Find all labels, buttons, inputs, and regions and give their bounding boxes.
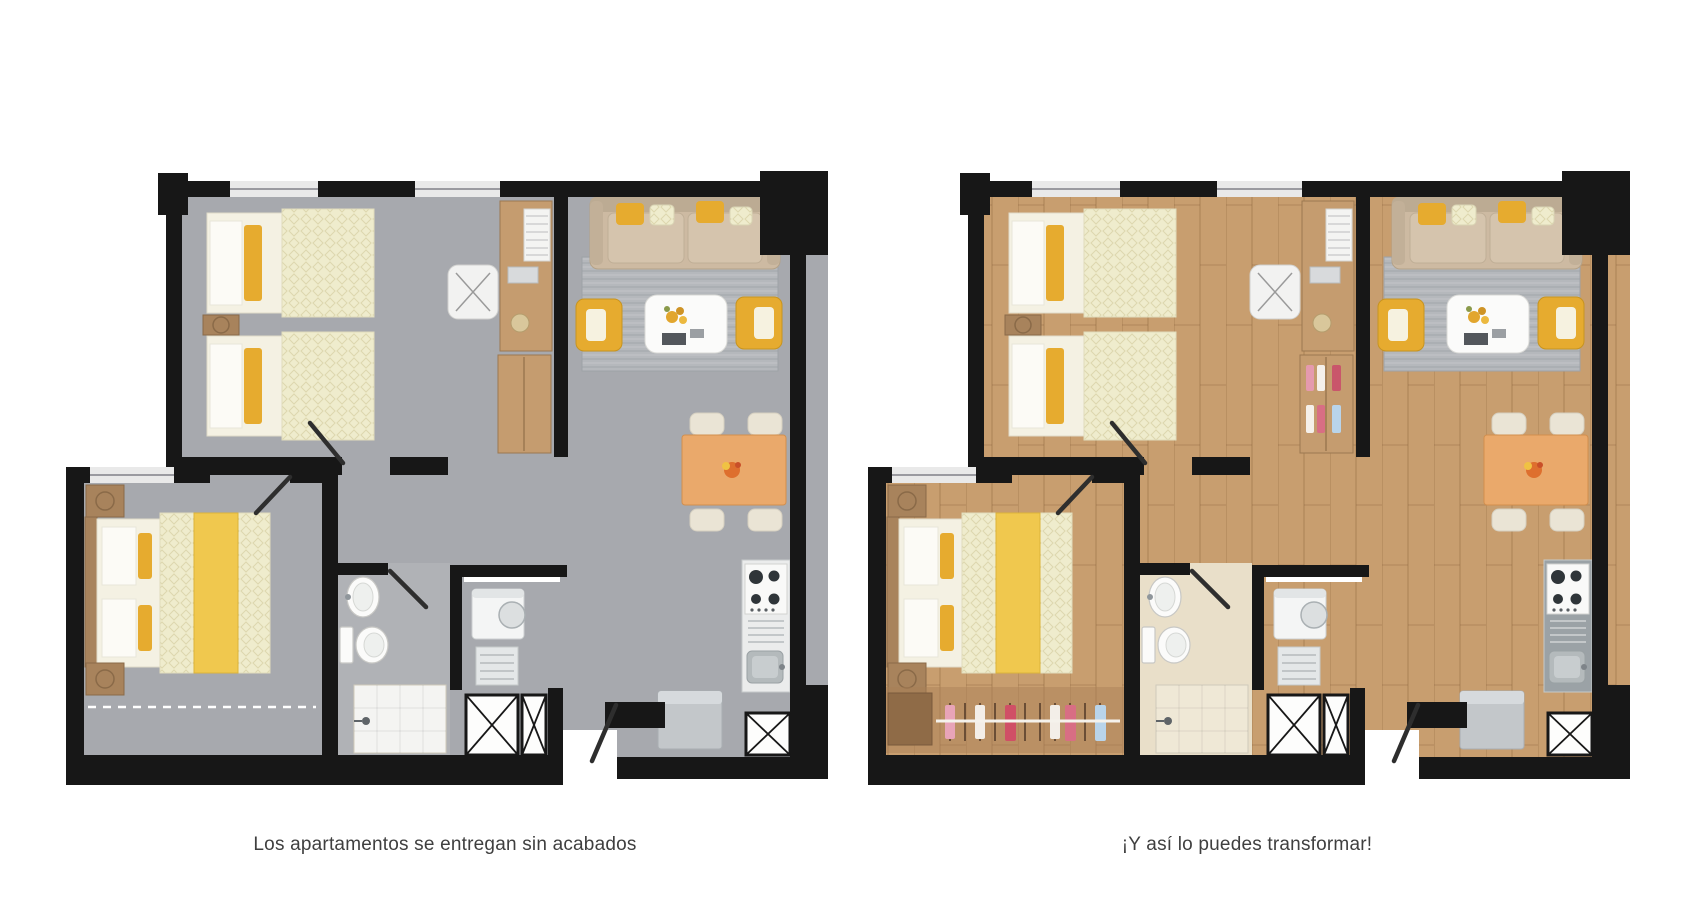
floor-plan-svg xyxy=(60,165,830,790)
office-chair xyxy=(448,265,498,319)
shower xyxy=(1156,685,1248,753)
cooktop xyxy=(745,564,787,614)
sofa-pillow-yellow-2 xyxy=(696,201,724,223)
hallway-wardrobe xyxy=(498,355,551,453)
duct-shaft xyxy=(746,713,790,755)
window-master xyxy=(892,467,976,483)
sofa-pillow-pattern-2 xyxy=(730,207,752,225)
desk-lamp xyxy=(511,314,529,332)
sofa-pillow-pattern xyxy=(650,205,674,225)
shower-drain xyxy=(1164,717,1172,725)
pillow-yellow xyxy=(1046,225,1064,301)
sofa-pillow-pattern xyxy=(1452,205,1476,225)
armchair-left xyxy=(1378,299,1424,351)
dining-chair xyxy=(748,413,782,435)
dining-chair xyxy=(690,509,724,531)
living-room xyxy=(576,197,782,371)
shower-drain xyxy=(362,717,370,725)
twin-bed-2 xyxy=(207,332,374,440)
duct-shaft xyxy=(1548,713,1592,755)
sofa xyxy=(590,197,780,269)
dining-chair xyxy=(690,413,724,435)
bookshelf xyxy=(524,209,550,261)
living-room xyxy=(1378,197,1584,371)
window-hall xyxy=(1217,181,1302,197)
book xyxy=(662,333,686,345)
plan-caption: ¡Y así lo puedes transformar! xyxy=(862,834,1632,856)
toilet xyxy=(340,627,388,663)
sofa-pillow-yellow-2 xyxy=(1498,201,1526,223)
hallway-wardrobe xyxy=(1300,355,1353,453)
window-hall xyxy=(415,181,500,197)
twin-bed-1 xyxy=(207,209,374,317)
dining-chair xyxy=(1492,509,1526,531)
armchair-left xyxy=(576,299,622,351)
washer xyxy=(1274,589,1327,639)
toilet xyxy=(1142,627,1190,663)
window-bedroom-secondary xyxy=(230,181,318,197)
sofa-pillow-yellow xyxy=(616,203,644,225)
nightstand xyxy=(1005,315,1041,335)
floor-plan-unfinished: Los apartamentos se entregan sin acabado… xyxy=(60,165,830,856)
dining-chair xyxy=(748,509,782,531)
closet-doors xyxy=(466,695,546,755)
laundry-closet xyxy=(1274,589,1327,685)
laundry-closet xyxy=(472,589,525,685)
laptop xyxy=(1310,267,1340,283)
flower-vase xyxy=(666,311,678,323)
dining-chair xyxy=(1550,413,1584,435)
pillow-yellow xyxy=(244,348,262,424)
nightstand xyxy=(888,485,926,517)
pillow-yellow xyxy=(244,225,262,301)
twin-bed-2 xyxy=(1009,332,1176,440)
kitchen-sink xyxy=(747,651,785,683)
laundry-shelf xyxy=(464,577,560,582)
water-heater xyxy=(1278,647,1320,685)
clothes-rack xyxy=(886,687,1124,753)
laundry-shelf xyxy=(1266,577,1362,582)
laptop xyxy=(508,267,538,283)
shower xyxy=(354,685,446,753)
refrigerator xyxy=(658,691,722,749)
nightstand xyxy=(86,663,124,695)
coffee-table xyxy=(645,295,727,353)
pillow-yellow xyxy=(1046,348,1064,424)
plan-caption: Los apartamentos se entregan sin acabado… xyxy=(60,834,830,856)
water-heater xyxy=(476,647,518,685)
sofa xyxy=(1392,197,1582,269)
dining-chair xyxy=(1492,413,1526,435)
cooktop xyxy=(1547,564,1589,614)
window-master xyxy=(90,467,174,483)
double-bed xyxy=(887,513,1072,673)
floor-plan-svg xyxy=(862,165,1632,790)
yellow-throw xyxy=(996,513,1040,673)
office-chair xyxy=(1250,265,1300,319)
armchair-right xyxy=(1538,297,1584,349)
coffee-table xyxy=(1447,295,1529,353)
headboard xyxy=(887,517,899,667)
armchair-right xyxy=(736,297,782,349)
twin-bed-1 xyxy=(1009,209,1176,317)
bookshelf xyxy=(1326,209,1352,261)
page: Los apartamentos se entregan sin acabado… xyxy=(0,0,1701,900)
washer xyxy=(472,589,525,639)
sofa-pillow-pattern-2 xyxy=(1532,207,1554,225)
closet-doors xyxy=(1268,695,1348,755)
window-bedroom-secondary xyxy=(1032,181,1120,197)
sofa-pillow-yellow xyxy=(1418,203,1446,225)
refrigerator xyxy=(1460,691,1524,749)
double-bed xyxy=(85,513,270,673)
headboard xyxy=(85,517,97,667)
nightstand xyxy=(86,485,124,517)
book xyxy=(1464,333,1488,345)
nightstand xyxy=(203,315,239,335)
desk-lamp xyxy=(1313,314,1331,332)
dining-chair xyxy=(1550,509,1584,531)
yellow-throw xyxy=(194,513,238,673)
kitchen-sink xyxy=(1549,651,1587,683)
floor-plan-finished: ¡Y así lo puedes transformar! xyxy=(862,165,1632,856)
flower-vase xyxy=(1468,311,1480,323)
